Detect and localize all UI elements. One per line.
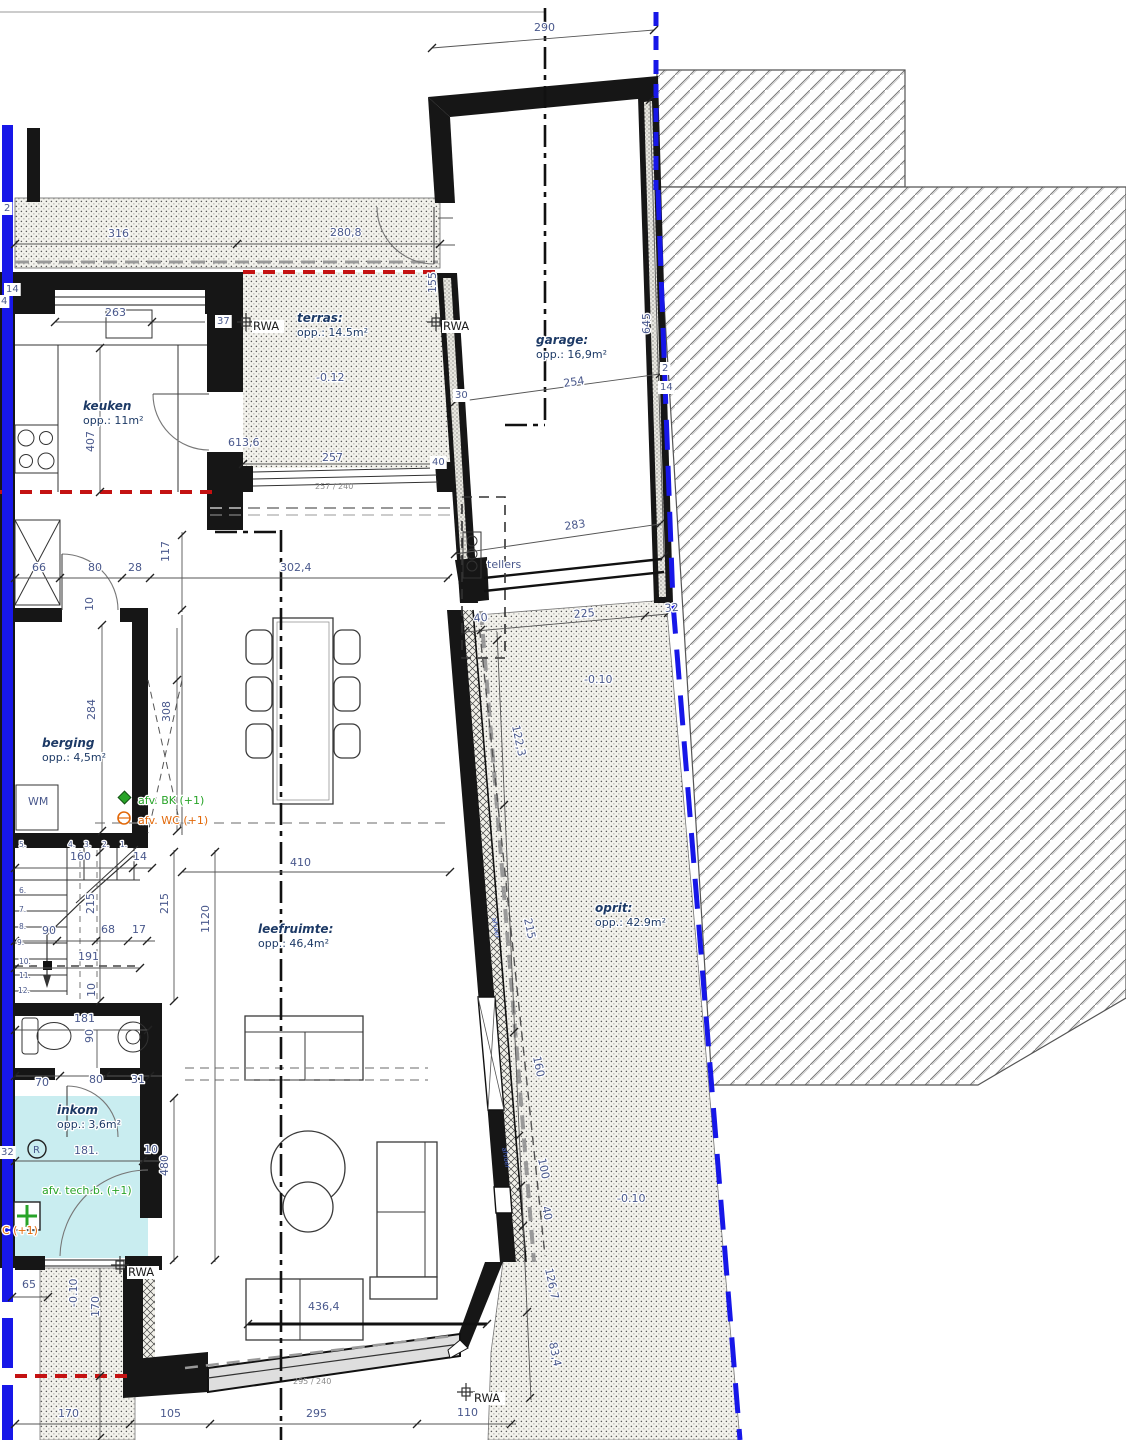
room-label-leefruimte: leefruimte: bbox=[258, 922, 333, 936]
dim-label: 254 bbox=[563, 374, 586, 390]
dim-label: 181 bbox=[74, 1012, 95, 1025]
tv-cabinet bbox=[245, 1016, 363, 1080]
stair-number: 6. bbox=[19, 886, 26, 895]
dim-label: 90 bbox=[42, 924, 56, 937]
dim-label: 215 bbox=[84, 893, 97, 914]
dim-label: 302,4 bbox=[280, 561, 312, 574]
dim-label: 645 bbox=[640, 313, 653, 334]
annotation-afv-techb: afv. tech.b. (+1) bbox=[42, 1184, 132, 1197]
round-side-table bbox=[283, 1182, 333, 1232]
dim-label: 480 bbox=[158, 1155, 171, 1176]
dim-label: 155 bbox=[426, 272, 439, 293]
staircase bbox=[15, 846, 140, 1002]
dim-label: 160 bbox=[70, 850, 91, 863]
stair-number: 12. bbox=[18, 986, 30, 995]
dim-label: 90 bbox=[83, 1029, 96, 1043]
toilet-bowl bbox=[37, 1023, 71, 1050]
dim-label: 280,8 bbox=[330, 226, 362, 239]
floor-plan-canvas: terras: opp.: 14.5m² garage: opp.: 16,9m… bbox=[0, 0, 1126, 1440]
room-area-leefruimte: opp.: 46,4m² bbox=[258, 937, 329, 950]
window-spec-terras: 257 / 240 bbox=[315, 482, 353, 491]
dim-label: 284 bbox=[85, 699, 98, 720]
stair-number: 7. bbox=[19, 905, 26, 914]
dim-label: 308 bbox=[160, 701, 173, 722]
cooktop-burner bbox=[38, 453, 54, 469]
dim-label: 170 bbox=[89, 1296, 102, 1317]
annotation-afv-wc: afv. WC (+1) bbox=[138, 814, 208, 827]
dim-label: 263 bbox=[105, 306, 126, 319]
cooktop-burner bbox=[18, 430, 34, 446]
terras-floor bbox=[243, 272, 452, 468]
room-label-berging: berging bbox=[42, 736, 95, 750]
room-area-terras: opp.: 14.5m² bbox=[297, 326, 368, 339]
room-label-inkom: inkom bbox=[57, 1103, 98, 1117]
dim-label: 181. bbox=[74, 1144, 99, 1157]
dim-label: 28 bbox=[128, 561, 142, 574]
room-area-garage: opp.: 16,9m² bbox=[536, 348, 607, 361]
dim-label: 66 bbox=[32, 561, 46, 574]
wall-tag: 32 bbox=[1, 1147, 14, 1158]
wall-tag: 2 bbox=[4, 203, 10, 214]
wall-tag: 14 bbox=[660, 382, 673, 393]
stair-number: 8. bbox=[19, 922, 26, 931]
dim-label: 316 bbox=[108, 227, 129, 240]
neighbour-buildings-hatch bbox=[657, 70, 1126, 1085]
wall-tag: 37 bbox=[217, 316, 230, 327]
stair-number: 3. bbox=[84, 840, 91, 849]
dim-label: -0.12 bbox=[316, 371, 344, 384]
room-area-keuken: opp.: 11m² bbox=[83, 414, 144, 427]
dim-label: 40 bbox=[473, 611, 488, 625]
rwa-label: RWA bbox=[253, 319, 279, 333]
dim-label: 10 bbox=[144, 1143, 158, 1156]
rwa-label: RWA bbox=[474, 1391, 500, 1405]
dim-label: 65 bbox=[22, 1278, 36, 1291]
dim-label: 1120 bbox=[199, 905, 212, 933]
dim-label: 14 bbox=[133, 850, 147, 863]
dim-label: 32 bbox=[664, 601, 679, 615]
dim-label: 290 bbox=[534, 21, 555, 34]
wall-tag: 4 bbox=[1, 296, 7, 307]
rwa-label: RWA bbox=[443, 319, 469, 333]
stair-number: 9. bbox=[17, 938, 24, 947]
dim-label: 117 bbox=[159, 541, 172, 562]
stair-number: 1. bbox=[120, 840, 127, 849]
wm-label: WM bbox=[28, 795, 48, 808]
cooktop-burner bbox=[40, 432, 53, 445]
dim-label: 80 bbox=[88, 561, 102, 574]
dim-label: 436,4 bbox=[308, 1300, 340, 1313]
stair-number: 2. bbox=[102, 840, 109, 849]
stair-number: 10. bbox=[19, 957, 31, 966]
room-label-oprit: oprit: bbox=[595, 901, 632, 915]
wall-tag: 40 bbox=[432, 457, 445, 468]
wall-tag: 2 bbox=[662, 363, 668, 374]
room-area-oprit: opp.: 42.9m² bbox=[595, 916, 666, 929]
wall-tag: 30 bbox=[455, 390, 468, 401]
dim-label: 17 bbox=[132, 923, 146, 936]
dim-label: 410 bbox=[290, 856, 311, 869]
stair-number: 11. bbox=[19, 971, 31, 980]
dim-label: 110 bbox=[457, 1406, 478, 1419]
toilet-tank bbox=[22, 1018, 38, 1054]
room-label-keuken: keuken bbox=[83, 399, 131, 413]
dim-label: 70 bbox=[35, 1076, 49, 1089]
dim-label: 257 bbox=[322, 451, 343, 464]
dim-label: 283 bbox=[564, 517, 587, 533]
dim-label: 80 bbox=[89, 1073, 103, 1086]
dim-label: 191 bbox=[78, 950, 99, 963]
dim-label: 295 bbox=[306, 1407, 327, 1420]
tellers-label: tellers bbox=[487, 558, 521, 571]
cooktop-burner bbox=[20, 455, 33, 468]
dim-label: 407 bbox=[84, 431, 97, 452]
annotation-afv-bk: afv. BK (+1) bbox=[138, 794, 204, 807]
dim-label: 215 bbox=[158, 893, 171, 914]
window-spec-living: 295 / 240 bbox=[293, 1377, 331, 1386]
room-label-garage: garage: bbox=[536, 333, 588, 347]
stair-number: 5. bbox=[19, 840, 26, 849]
room-area-inkom: opp.: 3,6m² bbox=[57, 1118, 121, 1131]
wall-tag: 14 bbox=[6, 284, 19, 295]
rear-terrace-strip bbox=[15, 198, 440, 268]
dim-label: -0.10 bbox=[67, 1279, 80, 1307]
dim-label: 31 bbox=[131, 1073, 145, 1086]
dim-label: 225 bbox=[573, 606, 595, 621]
dim-label: -0.10 bbox=[617, 1192, 645, 1205]
furniture bbox=[185, 618, 437, 1340]
dim-label: 68 bbox=[101, 923, 115, 936]
sofa bbox=[377, 1142, 437, 1277]
dim-label: 105 bbox=[160, 1407, 181, 1420]
rwa-label: RWA bbox=[128, 1265, 154, 1279]
dim-label: 170 bbox=[58, 1407, 79, 1420]
annotation-c-plus1: C (+1) bbox=[2, 1224, 38, 1237]
r-symbol: R bbox=[33, 1145, 40, 1156]
side-path bbox=[40, 1268, 135, 1440]
stair-number: 4. bbox=[68, 840, 75, 849]
dim-label: -0.10 bbox=[584, 673, 612, 686]
sideboard bbox=[246, 1279, 363, 1340]
floor-plan-drawing: terras: opp.: 14.5m² garage: opp.: 16,9m… bbox=[0, 0, 1126, 1440]
room-label-terras: terras: bbox=[297, 311, 343, 325]
dim-label: 10 bbox=[83, 597, 96, 611]
room-area-berging: opp.: 4,5m² bbox=[42, 751, 106, 764]
dim-label: 613,6 bbox=[228, 436, 260, 449]
dim-label: 10 bbox=[85, 983, 98, 997]
drain-marker-green bbox=[118, 791, 131, 804]
